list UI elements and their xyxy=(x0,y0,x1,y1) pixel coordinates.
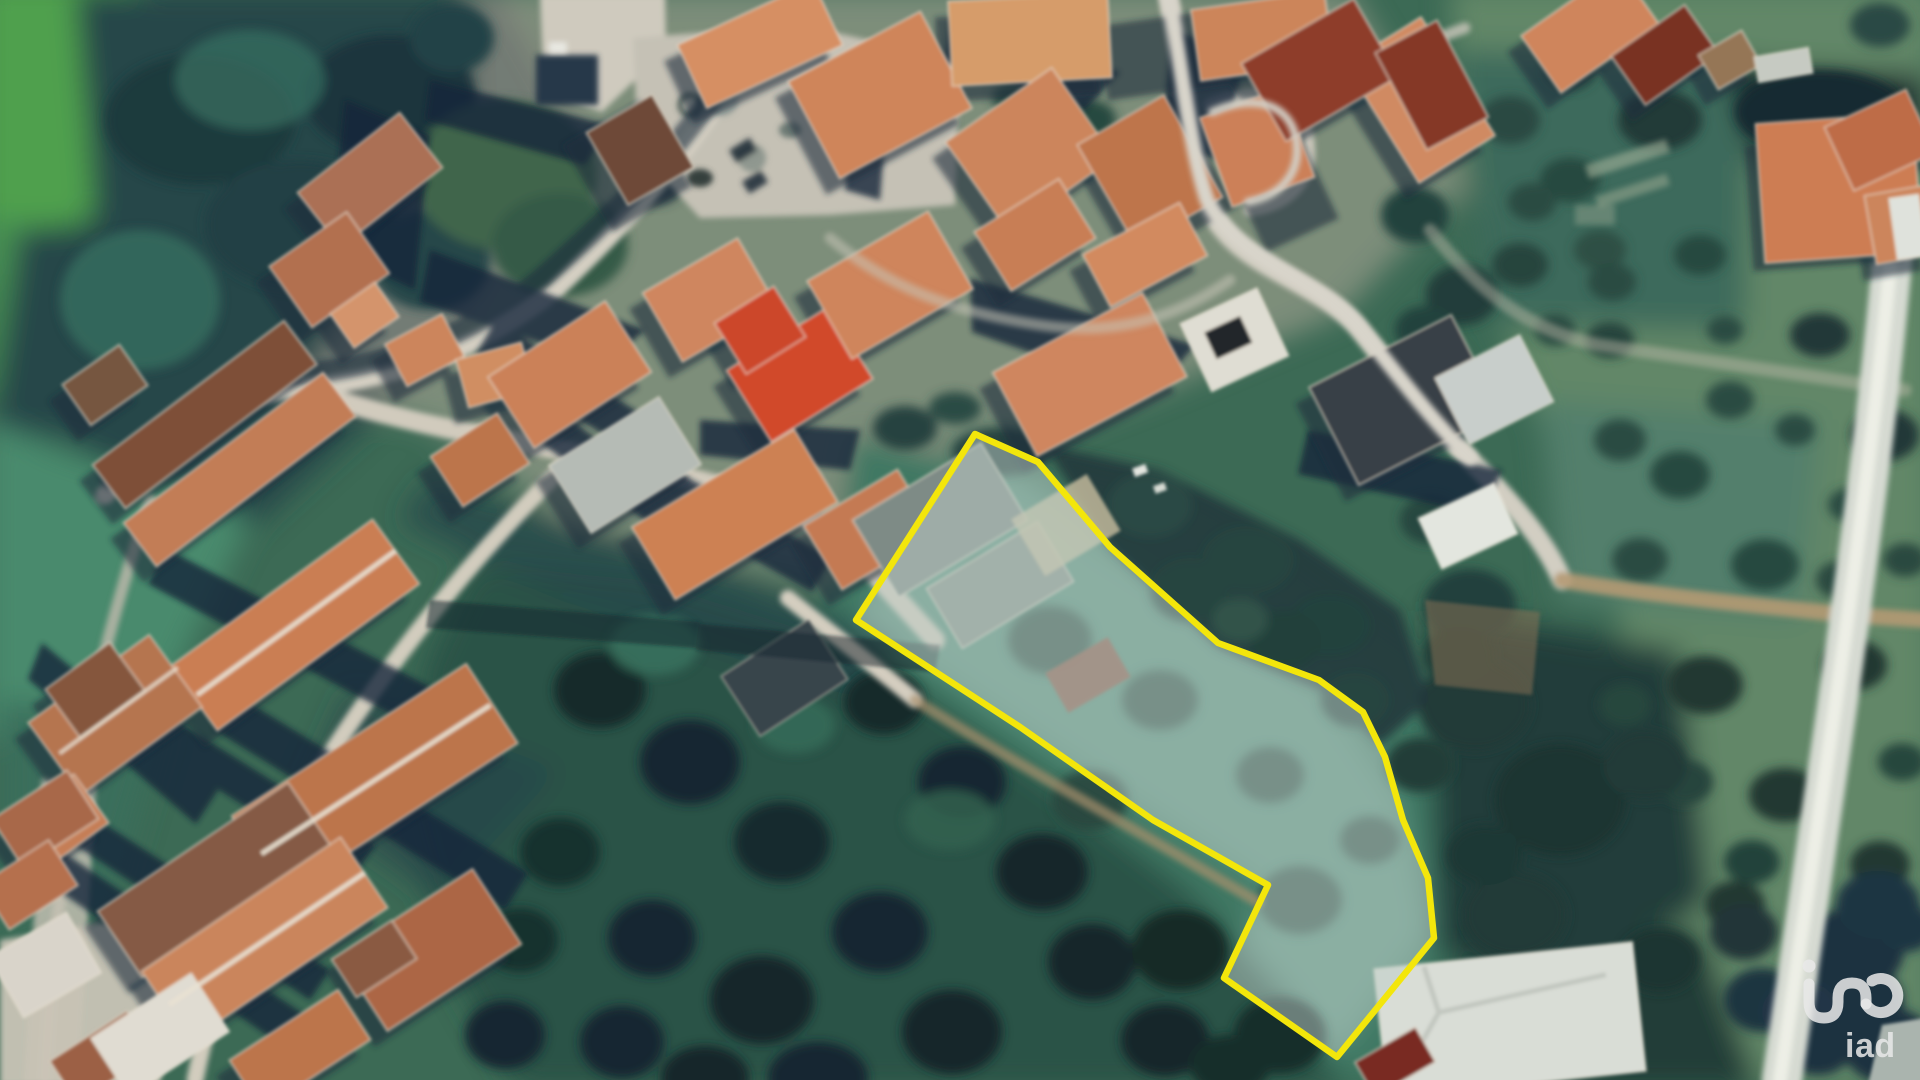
svg-text:iad: iad xyxy=(1845,1027,1896,1065)
